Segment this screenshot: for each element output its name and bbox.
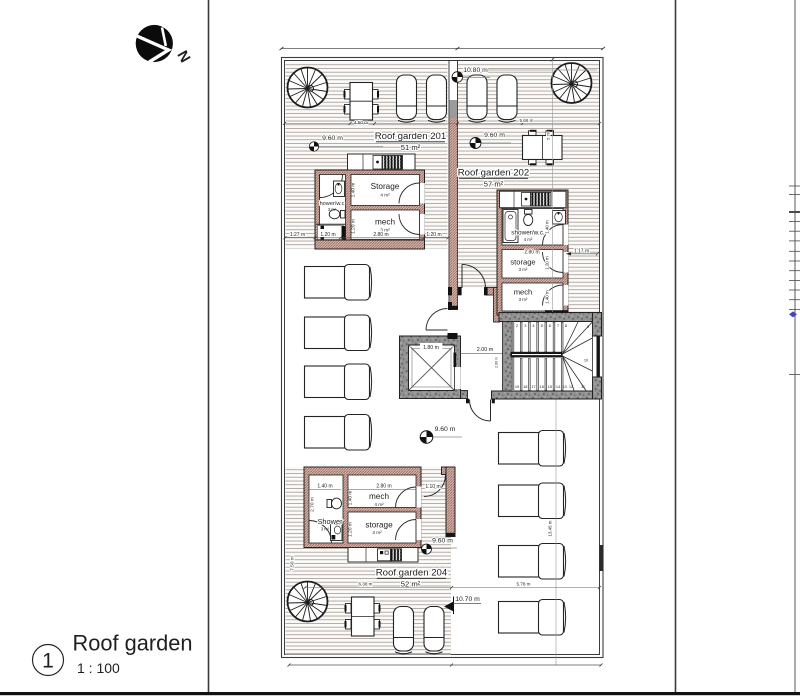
svg-text:3 m²: 3 m² xyxy=(372,530,382,535)
svg-text:2: 2 xyxy=(516,323,518,328)
svg-text:17: 17 xyxy=(531,384,535,389)
svg-text:3 m²: 3 m² xyxy=(328,207,337,212)
svg-text:Roof garden 204: Roof garden 204 xyxy=(376,568,448,579)
svg-text:5.78: 5.78 xyxy=(546,131,551,140)
svg-text:7.50 m: 7.50 m xyxy=(290,556,296,571)
svg-text:1.20 m: 1.20 m xyxy=(348,522,354,537)
svg-text:9.60 m: 9.60 m xyxy=(432,538,453,545)
svg-text:3: 3 xyxy=(524,323,526,328)
svg-text:9.60 m: 9.60 m xyxy=(484,132,505,139)
svg-text:mech: mech xyxy=(369,492,389,501)
svg-text:2.70 m: 2.70 m xyxy=(310,497,316,512)
svg-text:18: 18 xyxy=(523,384,527,389)
svg-text:1.20 m: 1.20 m xyxy=(320,232,335,238)
svg-text:1.27 m: 1.27 m xyxy=(290,232,305,238)
svg-text:16: 16 xyxy=(540,384,544,389)
svg-text:shower/w.c.: shower/w.c. xyxy=(511,230,545,237)
svg-text:1.40 m: 1.40 m xyxy=(348,491,354,506)
svg-text:15: 15 xyxy=(548,384,552,389)
svg-text:10.80 m: 10.80 m xyxy=(463,67,488,74)
svg-text:mech: mech xyxy=(375,218,395,227)
svg-text:2.80 m: 2.80 m xyxy=(376,484,391,490)
svg-text:1.20 m: 1.20 m xyxy=(545,256,550,270)
svg-text:Roof garden: Roof garden xyxy=(73,631,193,656)
svg-text:1.17 m: 1.17 m xyxy=(574,248,589,254)
svg-text:10.70 m: 10.70 m xyxy=(455,596,480,603)
svg-text:mech: mech xyxy=(514,288,533,297)
svg-text:2.80 m: 2.80 m xyxy=(524,250,539,256)
svg-text:3 m²: 3 m² xyxy=(519,267,528,272)
svg-text:1: 1 xyxy=(42,650,54,673)
svg-text:13: 13 xyxy=(562,384,566,389)
svg-text:12: 12 xyxy=(569,384,573,389)
svg-text:5.66 m: 5.66 m xyxy=(519,118,533,123)
svg-text:51 m²: 51 m² xyxy=(401,143,421,152)
svg-text:19: 19 xyxy=(515,384,519,389)
svg-text:8: 8 xyxy=(565,323,567,328)
svg-text:2.80 m: 2.80 m xyxy=(373,232,388,238)
svg-text:5.78 m: 5.78 m xyxy=(516,582,530,587)
svg-text:4 m²: 4 m² xyxy=(524,237,533,242)
svg-text:1 : 100: 1 : 100 xyxy=(77,660,120,676)
svg-text:1.40 m: 1.40 m xyxy=(351,183,357,198)
svg-text:3 m²: 3 m² xyxy=(321,527,330,532)
svg-text:13.45 m: 13.45 m xyxy=(548,520,553,536)
svg-text:9.60 m: 9.60 m xyxy=(435,426,456,433)
svg-text:3 m²: 3 m² xyxy=(519,297,528,302)
svg-text:Storage: Storage xyxy=(371,182,400,191)
svg-text:storage: storage xyxy=(510,258,535,267)
svg-text:9: 9 xyxy=(587,324,589,329)
svg-text:Roof garden 201: Roof garden 201 xyxy=(375,131,446,142)
svg-text:1.10 m: 1.10 m xyxy=(425,484,440,490)
svg-text:5: 5 xyxy=(541,323,543,328)
svg-text:6.38 m: 6.38 m xyxy=(358,582,372,587)
svg-text:1.20 m: 1.20 m xyxy=(351,219,357,234)
svg-text:4.50 m: 4.50 m xyxy=(354,120,368,125)
svg-text:Shower: Shower xyxy=(317,517,343,526)
svg-text:6: 6 xyxy=(549,323,551,328)
svg-text:Roof garden 202: Roof garden 202 xyxy=(458,168,529,179)
svg-text:11: 11 xyxy=(581,384,585,389)
svg-text:52 m²: 52 m² xyxy=(401,580,421,589)
svg-text:2.00 m: 2.00 m xyxy=(495,357,499,368)
svg-text:9.60 m: 9.60 m xyxy=(322,135,343,142)
svg-text:1.80 m: 1.80 m xyxy=(423,345,439,351)
svg-text:storage: storage xyxy=(365,521,393,530)
svg-text:1.40 m: 1.40 m xyxy=(317,484,332,490)
svg-text:1.40 m: 1.40 m xyxy=(545,220,550,234)
svg-text:7: 7 xyxy=(557,323,559,328)
svg-text:57 m²: 57 m² xyxy=(484,180,504,189)
svg-text:1.40 m: 1.40 m xyxy=(545,290,550,304)
svg-text:4 m²: 4 m² xyxy=(380,193,390,198)
svg-text:4 m²: 4 m² xyxy=(374,502,384,507)
svg-text:2.00 m: 2.00 m xyxy=(477,347,494,353)
svg-text:1.20 m: 1.20 m xyxy=(426,232,441,238)
